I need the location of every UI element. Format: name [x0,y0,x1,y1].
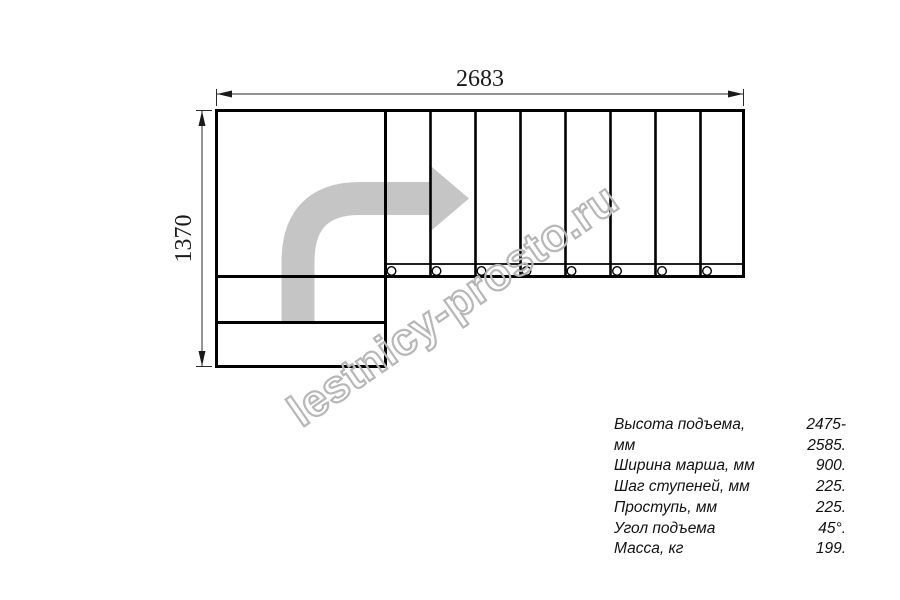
dimension-arrow-right [728,91,743,98]
height-dimension-label: 1370 [171,215,197,263]
spec-value: 225. [816,477,846,498]
spec-row-angle: Угол подъема 45°. [614,519,846,540]
spec-label: Шаг ступеней, мм [614,477,750,498]
left-dimension [196,111,212,367]
spec-label: Проступь, мм [614,498,717,519]
spec-row-height: Высота подъема, мм 2475-2585. [614,415,846,456]
spec-row-march-width: Ширина марша, мм 900. [614,456,846,477]
dimension-arrow-top [199,111,206,126]
width-dimension-label: 2683 [456,66,504,92]
dimension-arrow-left [217,91,232,98]
spec-value: 2475-2585. [769,415,846,456]
specs-table: Высота подъема, мм 2475-2585. Ширина мар… [614,415,846,560]
spec-row-tread-depth: Проступь, мм 225. [614,498,846,519]
mount-holes-group [387,267,711,276]
mount-hole [477,267,486,276]
spec-row-step-pitch: Шаг ступеней, мм 225. [614,477,846,498]
mount-hole [703,267,712,276]
spec-label: Угол подъема [614,519,715,540]
mount-hole [613,267,622,276]
spec-value: 199. [816,539,846,560]
mount-hole [432,267,441,276]
direction-arrow-shaft [298,199,429,323]
mount-hole [387,267,396,276]
mount-hole [522,267,531,276]
direction-arrow-head [429,165,469,233]
spec-label: Высота подъема, мм [614,415,769,456]
spec-label: Ширина марша, мм [614,456,755,477]
staircase-drawing-page: 2683 1370 lestnicy-prosto.ru Высота подъ… [0,0,900,600]
dimension-arrow-bottom [199,351,206,366]
spec-row-mass: Масса, кг 199. [614,539,846,560]
spec-value: 225. [816,498,846,519]
direction-arrow [298,165,469,323]
mount-hole [567,267,576,276]
mount-hole [658,267,667,276]
spec-value: 45°. [818,519,846,540]
spec-label: Масса, кг [614,539,683,560]
spec-value: 900. [816,456,846,477]
